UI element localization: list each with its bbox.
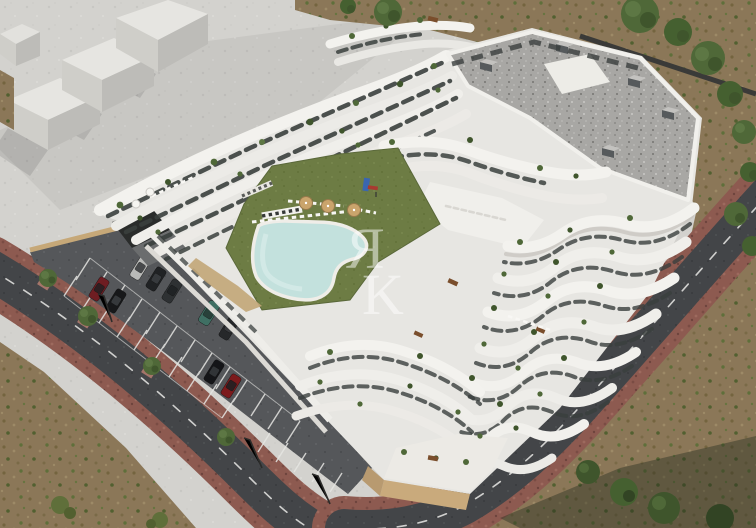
architectural-render: Я K bbox=[0, 0, 756, 528]
tree bbox=[691, 41, 725, 75]
terrace-umbrella bbox=[132, 200, 140, 208]
tree bbox=[717, 81, 743, 107]
watermark-letter-bottom: K bbox=[362, 262, 404, 327]
tree bbox=[732, 120, 756, 144]
render-canvas: Я K bbox=[0, 0, 756, 528]
tree bbox=[610, 478, 638, 506]
tree bbox=[648, 492, 680, 524]
dirt-sliver bbox=[0, 70, 14, 130]
tree bbox=[576, 460, 600, 484]
tree bbox=[664, 18, 692, 46]
tree bbox=[724, 202, 748, 226]
tree bbox=[217, 428, 235, 446]
terrace-umbrella bbox=[146, 188, 154, 196]
